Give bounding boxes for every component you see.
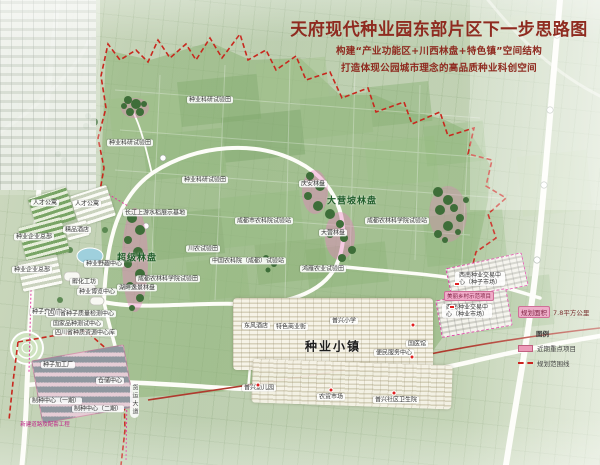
- map-label: 仓储中心: [96, 377, 124, 384]
- town-name-label: 种业小镇: [305, 338, 361, 355]
- map-label: 成都农林科学院试验站: [365, 217, 429, 224]
- map-legend: 规划面积 7.8平方公里 图例 近期重点项目 规划范围线: [518, 306, 589, 368]
- map-label: 长江上游水稻展示基地: [123, 209, 187, 216]
- map-label: 人才公寓: [31, 199, 59, 206]
- key-project-marker: [449, 305, 455, 309]
- map-label: 农贸市场: [317, 393, 345, 400]
- new-road-project-label: 新建道路及配套工程: [20, 420, 70, 428]
- seed-town-south: [251, 359, 452, 410]
- map-label: 川农试验田: [186, 245, 220, 252]
- map-label: 种业野趣中心: [84, 260, 124, 267]
- map-label: 四川省种子质量检测中心: [46, 310, 116, 317]
- map-label: 国医馆: [406, 340, 428, 347]
- planned-area-badge: 规划面积: [518, 306, 550, 318]
- key-project-dot: [392, 391, 397, 396]
- map-label: 四川省种质资源中心库: [53, 329, 117, 336]
- key-project-badge: 美丽乡村示范项目: [444, 291, 494, 301]
- map-label: 庆安林盘: [299, 180, 327, 187]
- legend-title: 图例: [536, 328, 589, 338]
- map-label: 东风酒店: [242, 322, 270, 329]
- map-label: 种业科研试验田: [187, 96, 233, 103]
- map-label: 孵化工坊: [70, 278, 98, 285]
- page-subtitle-2: 打造体现公园城市理念的高品质种业科创空间: [282, 60, 596, 74]
- planned-area-row: 规划面积 7.8平方公里: [518, 306, 589, 318]
- legend-item-label: 近期重点项目: [537, 343, 576, 353]
- map-label: 精品酒店: [63, 226, 91, 233]
- map-label: 制种中心（二期）: [72, 405, 124, 412]
- linpan-name-label: 大营坡林盘: [327, 194, 377, 207]
- map-label: 普兴小学: [330, 317, 358, 324]
- boundary-swatch: [518, 362, 533, 364]
- map-label: 普兴社区卫生院: [373, 396, 419, 403]
- planning-map-canvas: 天府现代种业园东部片区下一步思路图 构建“产业功能区+川西林盘+特色镇”空间结构…: [0, 0, 600, 465]
- map-label: 中国农科院（成都）试验站: [210, 257, 286, 264]
- map-label: 种业科研试验田: [182, 176, 228, 183]
- map-label: 种业科研试验田: [107, 139, 153, 146]
- title-block: 天府现代种业园东部片区下一步思路图 构建“产业功能区+川西林盘+特色镇”空间结构…: [282, 15, 596, 74]
- key-project-dot: [329, 388, 334, 393]
- map-label: 成都农林科学院试验田: [136, 275, 200, 282]
- map-label: 西南种业交易中心（种子市场）: [455, 272, 505, 286]
- map-label: 国家品种测试中心: [51, 320, 103, 327]
- city-area-west: [0, 0, 96, 190]
- map-label: 成都市农科院试验站: [235, 217, 293, 224]
- key-project-swatch: [518, 345, 533, 352]
- map-label: 种子加工厂: [41, 361, 75, 368]
- map-label: 种业企业总部: [12, 266, 52, 273]
- legend-item-key-projects: 近期重点项目: [518, 343, 589, 353]
- road-name-label: 货运大道: [130, 382, 139, 418]
- map-label: 湖畔逸景林盘: [117, 284, 157, 291]
- map-label: 鸿雁农业试验田: [300, 265, 346, 272]
- legend-item-label: 规划范围线: [537, 358, 570, 368]
- map-label: 种业博览中心: [77, 288, 117, 295]
- key-project-dot: [410, 355, 415, 360]
- map-label: 人才公寓: [73, 200, 101, 207]
- page-title: 天府现代种业园东部片区下一步思路图: [282, 15, 596, 40]
- planned-area-value: 7.8平方公里: [553, 307, 589, 317]
- key-project-marker: [454, 282, 460, 286]
- key-project-dot: [256, 383, 261, 388]
- page-subtitle-1: 构建“产业功能区+川西林盘+特色镇”空间结构: [282, 43, 596, 57]
- map-label: 制种中心（一期）: [30, 397, 82, 404]
- map-label: 大营林盘: [319, 229, 347, 236]
- map-label: 特色商业街: [274, 323, 308, 330]
- legend-item-boundary: 规划范围线: [518, 358, 589, 368]
- key-project-dot: [411, 323, 416, 328]
- map-label: 便民服务中心: [374, 349, 414, 356]
- map-label: 种业企业总部: [14, 233, 54, 240]
